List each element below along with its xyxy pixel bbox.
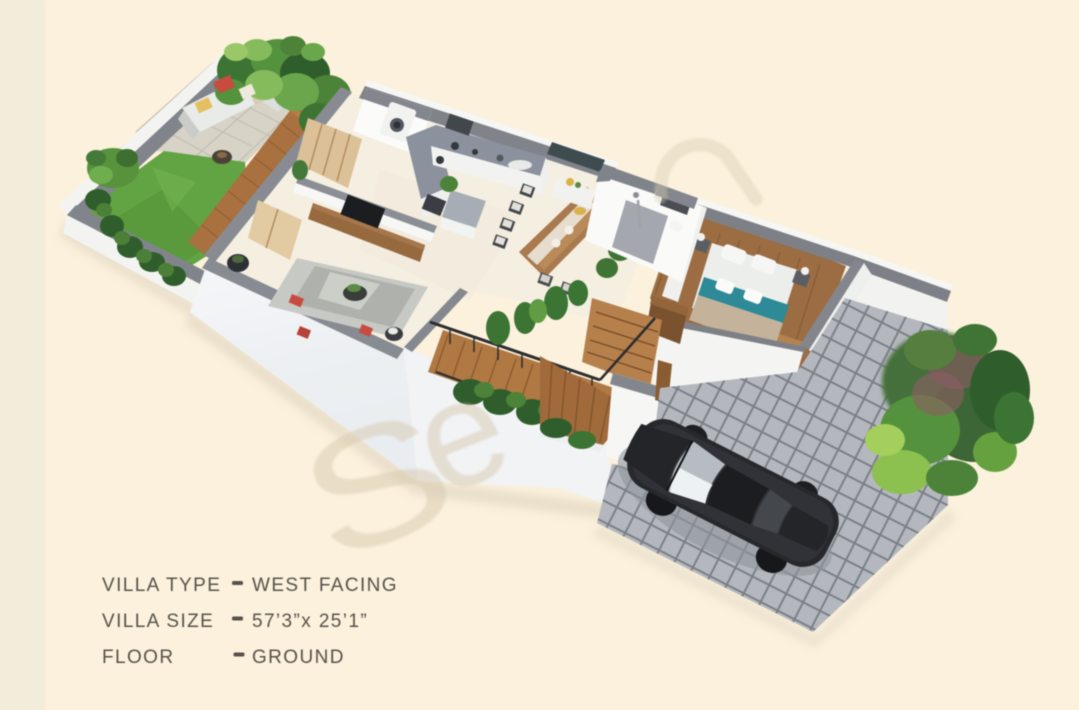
svg-text:VILLA SIZE: VILLA SIZE	[102, 611, 214, 632]
svg-text:57’3”x 25’1”: 57’3”x 25’1”	[252, 611, 368, 632]
svg-text:VILLA TYPE: VILLA TYPE	[102, 575, 221, 596]
svg-text:GROUND: GROUND	[252, 647, 345, 668]
svg-text:FLOOR: FLOOR	[102, 647, 174, 668]
svg-text:WEST FACING: WEST FACING	[252, 575, 398, 596]
